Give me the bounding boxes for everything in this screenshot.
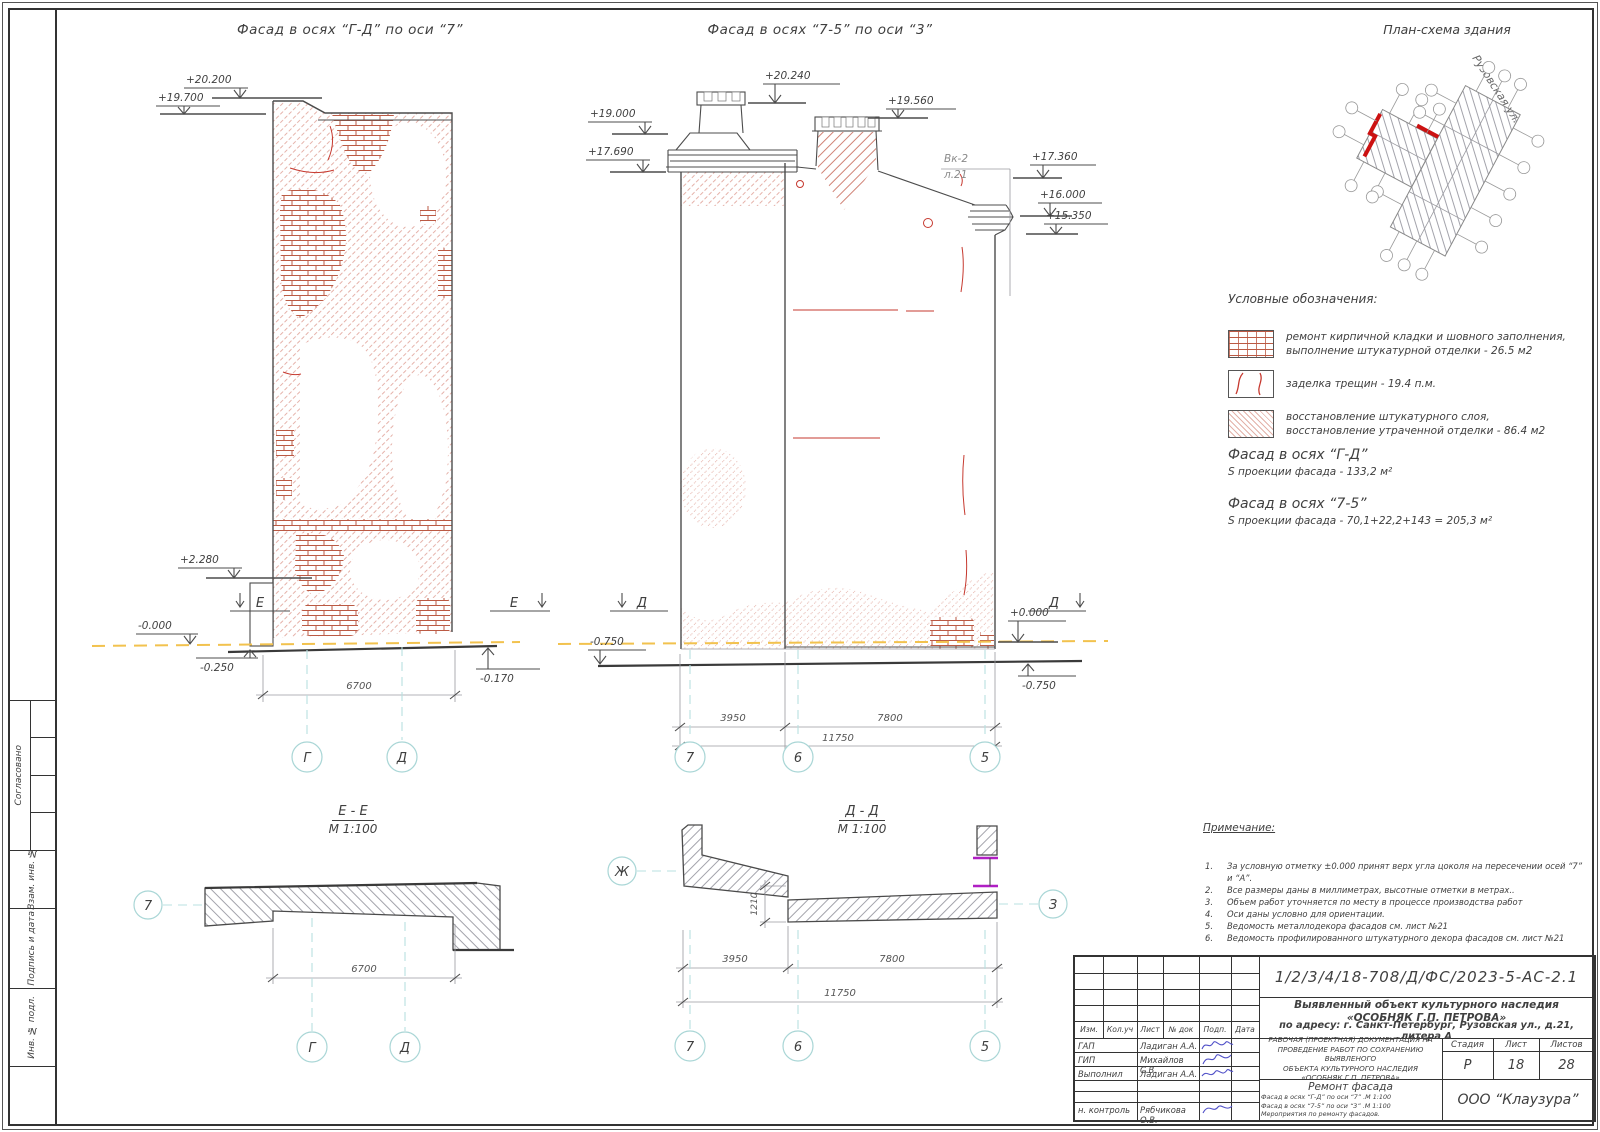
strip-divider xyxy=(30,812,55,813)
tb-line xyxy=(1075,1091,1259,1092)
note-number: 5. xyxy=(1203,920,1227,932)
area-block-title: Фасад в осях “7-5” xyxy=(1228,496,1600,512)
role-ncontrol: н. контроль xyxy=(1078,1105,1138,1116)
note-item: 4.Оси даны условно для ориентации. xyxy=(1203,908,1588,920)
strip-cell-inv: Инв. № подл. xyxy=(8,988,55,1066)
legend-line: восстановление штукатурного слоя, xyxy=(1286,410,1545,424)
note-text: Оси даны условно для ориентации. xyxy=(1227,908,1385,920)
facade-gd-title: Фасад в осях “Г-Д” по оси “7” xyxy=(180,22,520,38)
work-title: Ремонт фасада xyxy=(1261,1081,1440,1093)
legend-line: заделка трещин - 19.4 п.м. xyxy=(1286,377,1436,391)
note-text: Ведомость профилированного штукатурного … xyxy=(1227,932,1564,944)
company-name: ООО “Клаузура” xyxy=(1442,1079,1594,1120)
note-text: Ведомость металлодекора фасадов см. лист… xyxy=(1227,920,1448,932)
object-line1: Выявленный объект культурного наследия xyxy=(1259,998,1594,1011)
stage-label: Стадия xyxy=(1442,1038,1493,1051)
section-dd-name: Д - Д xyxy=(839,804,884,821)
desc-line: ПРОВЕДЕНИЕ РАБОТ ПО СОХРАНЕНИЮ ВЫЯВЛЕНОГ… xyxy=(1261,1045,1440,1064)
note-number: 6. xyxy=(1203,932,1227,944)
crack-swatch xyxy=(1228,370,1274,398)
podpis-label: Подпись и дата xyxy=(27,911,37,986)
name-done: Ладиган А.А. xyxy=(1140,1069,1198,1080)
doc-number: 1/2/3/4/18-708/Д/ФС/2023-5-АС-2.1 xyxy=(1259,957,1594,997)
legend-heading: Условные обозначения: xyxy=(1228,292,1600,306)
role-done: Выполнил xyxy=(1078,1069,1136,1080)
strip-cell-vzam: Взам. инв. № xyxy=(8,850,55,908)
note-item: 3.Объем работ уточняется по месту в проц… xyxy=(1203,896,1588,908)
note-item: 1.За условную отметку ±0.000 принят верх… xyxy=(1203,860,1588,884)
work-line: Мероприятия по ремонту фасадов. xyxy=(1261,1110,1440,1119)
approved-label: Согласовано xyxy=(14,745,24,805)
legend: Условные обозначения: ремонт кирпичной к… xyxy=(1228,292,1600,450)
plaster-swatch xyxy=(1228,410,1274,438)
section-ee-name: Е - Е xyxy=(332,804,373,821)
sheet-label: Лист xyxy=(1493,1038,1539,1051)
work-description: Ремонт фасада Фасад в осях “Г-Д” по оси … xyxy=(1261,1081,1440,1119)
note-text: Объем работ уточняется по месту в процес… xyxy=(1227,896,1523,908)
area-block-title: Фасад в осях “Г-Д” xyxy=(1228,447,1600,463)
note-text: Все размеры даны в миллиметрах, высотные… xyxy=(1227,884,1515,896)
note-item: 2.Все размеры даны в миллиметрах, высотн… xyxy=(1203,884,1588,896)
strip-cell-approved: Согласовано xyxy=(8,700,30,850)
section-dd-scale: М 1:100 xyxy=(797,822,927,836)
section-ee-title: Е - Е М 1:100 xyxy=(288,804,418,836)
note-number: 2. xyxy=(1203,884,1227,896)
strip-divider xyxy=(30,737,55,738)
role-gip: ГИП xyxy=(1078,1055,1136,1066)
facade-areas: Фасад в осях “Г-Д” S проекции фасада - 1… xyxy=(1228,447,1600,545)
col-izm: Изм. xyxy=(1075,1021,1103,1038)
drawing-sheet: +20.200 +19.700 +2.280 -0.000 -0.250 -0.… xyxy=(0,0,1600,1132)
facade-75-title: Фасад в осях “7-5” по оси “3” xyxy=(650,22,990,38)
note-item: 5.Ведомость металлодекора фасадов см. ли… xyxy=(1203,920,1588,932)
sheets-value: 28 xyxy=(1539,1051,1594,1079)
doc-description: РАБОЧАЯ (ПРОЕКТНАЯ) ДОКУМЕНТАЦИЯ НА ПРОВ… xyxy=(1261,1040,1440,1078)
legend-line: выполнение штукатурной отделки - 26.5 м2 xyxy=(1286,344,1566,358)
strip-divider xyxy=(8,1066,55,1067)
stage-value: Р xyxy=(1442,1051,1493,1079)
col-ndok: № док xyxy=(1163,1021,1199,1038)
note-number: 3. xyxy=(1203,896,1227,908)
signature-scribble xyxy=(1200,1065,1234,1081)
section-ee-scale: М 1:100 xyxy=(288,822,418,836)
strip-divider xyxy=(30,775,55,776)
note-item: 6.Ведомость профилированного штукатурног… xyxy=(1203,932,1588,944)
note-number: 4. xyxy=(1203,908,1227,920)
area-block-value: S проекции фасада - 133,2 м² xyxy=(1228,466,1600,478)
legend-item-text: восстановление штукатурного слоя, восста… xyxy=(1286,410,1545,438)
work-line: Фасад в осях “Г-Д” по оси “7” .М 1:100 xyxy=(1261,1093,1440,1102)
signature xyxy=(1200,1065,1234,1081)
name-gip: Михайлов С.В. xyxy=(1140,1055,1198,1066)
notes-heading: Примечание: xyxy=(1203,822,1588,834)
col-list: Лист xyxy=(1137,1021,1163,1038)
name-ncontrol: Рябчикова О.В. xyxy=(1140,1105,1198,1116)
role-gap: ГАП xyxy=(1078,1041,1136,1052)
notes-block: Примечание: 1.За условную отметку ±0.000… xyxy=(1203,822,1588,944)
signature-scribble xyxy=(1200,1101,1234,1117)
gost-side-strip: Согласовано Взам. инв. № Подпись и дата … xyxy=(8,8,55,1124)
vzam-label: Взам. инв. № xyxy=(27,848,37,910)
sheet-value: 18 xyxy=(1493,1051,1539,1079)
name-gap: Ладиган А.А. xyxy=(1140,1041,1198,1052)
sheets-label: Листов xyxy=(1539,1038,1594,1051)
legend-item-text: заделка трещин - 19.4 п.м. xyxy=(1286,370,1436,391)
work-line: Фасад в осях “7-5” по оси “3” .М 1:100 xyxy=(1261,1102,1440,1111)
legend-line: восстановление утраченной отделки - 86.4… xyxy=(1286,424,1545,438)
strip-cell-podpis: Подпись и дата xyxy=(8,908,55,988)
col-data: Дата xyxy=(1231,1021,1259,1038)
brick-hatch-swatch xyxy=(1228,330,1274,358)
desc-line: ОБЪЕКТА КУЛЬТУРНОГО НАСЛЕДИЯ xyxy=(1283,1064,1418,1074)
section-dd-title: Д - Д М 1:100 xyxy=(797,804,927,836)
legend-item-cracks: заделка трещин - 19.4 п.м. xyxy=(1228,370,1600,398)
legend-item-text: ремонт кирпичной кладки и шовного заполн… xyxy=(1286,330,1566,358)
legend-line: ремонт кирпичной кладки и шовного заполн… xyxy=(1286,330,1566,344)
desc-line: РАБОЧАЯ (ПРОЕКТНАЯ) ДОКУМЕНТАЦИЯ НА xyxy=(1268,1035,1432,1045)
legend-item-plaster: восстановление штукатурного слоя, восста… xyxy=(1228,410,1600,438)
legend-item-brick: ремонт кирпичной кладки и шовного заполн… xyxy=(1228,330,1600,358)
col-podp: Подп. xyxy=(1199,1021,1231,1038)
note-number: 1. xyxy=(1203,860,1227,884)
crack-glyph xyxy=(1229,371,1272,396)
frame-left-line xyxy=(55,8,57,1124)
title-block: Изм. Кол.уч Лист № док Подп. Дата 1/2/3/… xyxy=(1073,955,1596,1122)
signature xyxy=(1200,1101,1234,1117)
inv-label: Инв. № подл. xyxy=(27,996,37,1059)
tb-line xyxy=(1137,957,1138,1120)
note-text: За условную отметку ±0.000 принят верх у… xyxy=(1227,860,1588,884)
area-block-value: S проекции фасада - 70,1+22,2+143 = 205,… xyxy=(1228,515,1600,527)
col-koluch: Кол.уч xyxy=(1103,1021,1137,1038)
